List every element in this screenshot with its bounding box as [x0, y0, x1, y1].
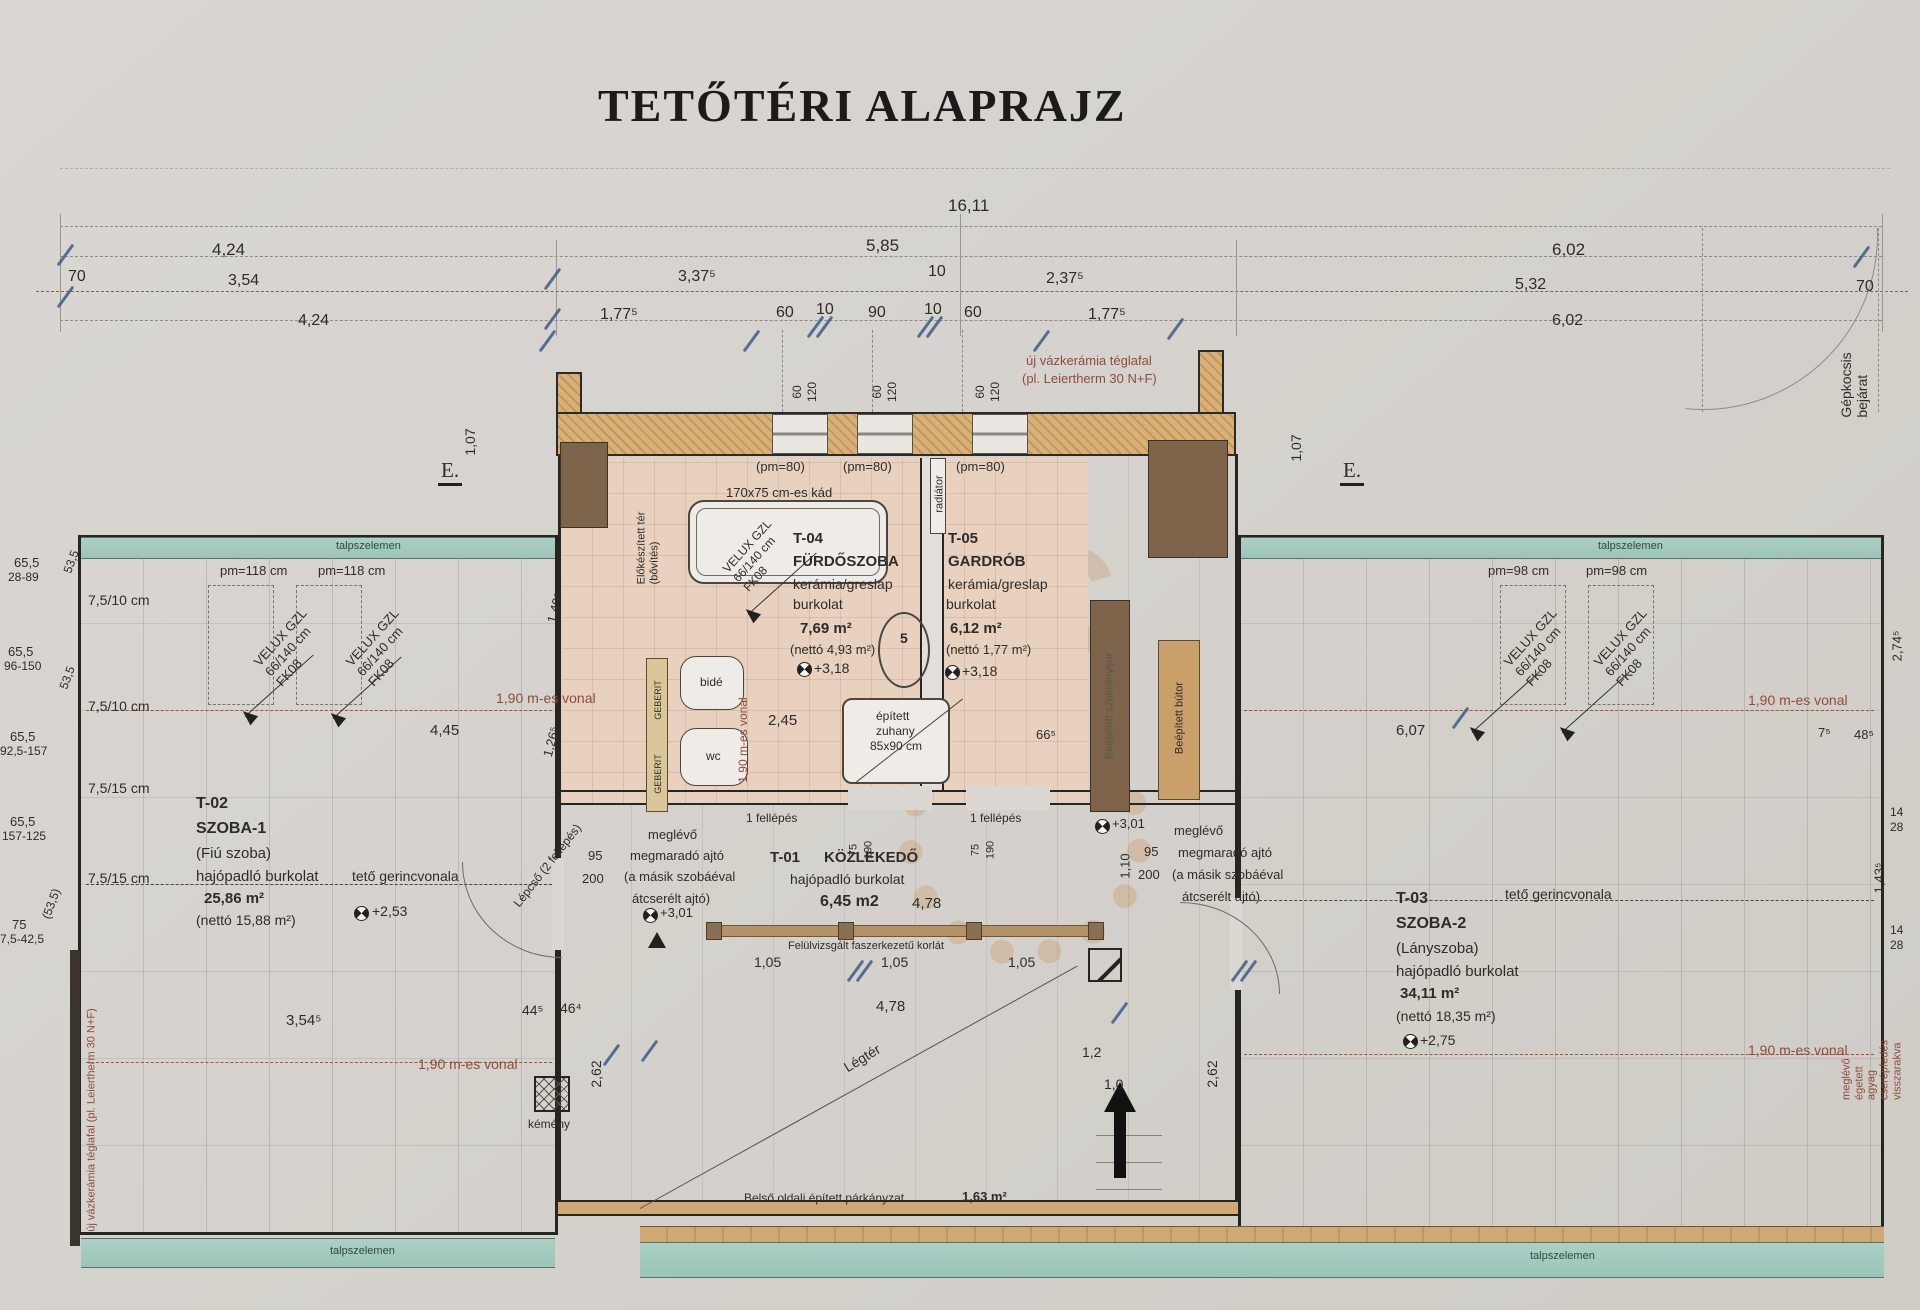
pen-mark — [743, 330, 761, 353]
corridor-label: 1,05 — [881, 954, 908, 970]
left_column-label: 53,5 — [58, 665, 79, 692]
dims_top-label: 5,85 — [866, 236, 899, 256]
left_column-label: 7,5-42,5 — [0, 933, 44, 947]
dims_top-label: 60 — [776, 304, 794, 322]
bathroom-label: burkolat — [793, 596, 843, 612]
dim-line — [60, 168, 1890, 169]
bathroom-label: wc — [706, 750, 721, 764]
bathroom-label: GEBERIT — [653, 680, 663, 720]
wall-plate-band — [1241, 537, 1881, 559]
wall-plate-band — [640, 1242, 1884, 1278]
railing — [712, 925, 1096, 937]
red_notes-label: meglévő égetett agyag cserépfedés vissza… — [1840, 1040, 1903, 1100]
corridor-label: 1,05 — [1008, 954, 1035, 970]
gardrob-label: 66⁵ — [1036, 728, 1056, 743]
window-opening — [772, 414, 828, 454]
wall-plate-label: talpszelemen — [1598, 540, 1663, 553]
bathroom-label: bidé — [700, 676, 723, 690]
railing-post — [706, 922, 722, 940]
wall-plate-band — [81, 537, 555, 559]
section-mark-right: E. — [1340, 458, 1364, 486]
corridor-label: 1,05 — [754, 954, 781, 970]
bathroom-label: kerámia/greslap — [793, 576, 893, 592]
room-id-t01: T-01 — [770, 849, 800, 866]
builtin-furniture-label: Beépített bútor — [1174, 682, 1187, 754]
top_wall-label: 120 — [806, 382, 820, 402]
top_wall-label: (pm=80) — [756, 460, 805, 475]
room-id-t05: T-05 — [948, 530, 978, 547]
left_room-label: (Fiú szoba) — [196, 845, 271, 862]
room-name-t03: SZOBA-2 — [1396, 915, 1466, 933]
right_room-label: pm=98 cm — [1488, 564, 1549, 579]
corridor-label: 2,62 — [1204, 1060, 1220, 1087]
right_edge-label: 1,43⁵ — [1873, 863, 1888, 894]
room-name-t04: FÜRDŐSZOBA — [793, 553, 899, 570]
right_room-label: +2,75 — [1420, 1032, 1455, 1048]
note-new-brick-wall: új vázkerámia téglafal — [1026, 354, 1152, 369]
wall-stub — [1198, 350, 1224, 414]
right_edge-label: 28 — [1890, 821, 1903, 835]
garage-door-line — [1878, 228, 1879, 412]
dim-line — [60, 226, 1882, 227]
pen-mark — [1167, 318, 1185, 341]
dim-tick — [60, 214, 61, 332]
corridor-label: +3,01 — [660, 906, 693, 921]
right_room-label: 34,11 m² — [1400, 985, 1459, 1002]
corridor-label: 190 — [985, 841, 998, 859]
dim-overall: 16,11 — [948, 196, 989, 216]
dims_top-label: 6,02 — [1552, 240, 1585, 260]
corridor-label: hajópadló burkolat — [790, 871, 904, 887]
corridor-label: 2,62 — [588, 1060, 604, 1087]
masonry-block — [560, 442, 608, 528]
corridor-label: megmaradó ajtó — [630, 849, 724, 864]
corridor-label: 1 fellépés — [970, 812, 1021, 826]
corridor-label: 1,63 m² — [962, 1190, 1007, 1205]
top_wall-label: 120 — [886, 382, 900, 402]
dims_top-label: 1,77⁵ — [600, 306, 638, 324]
gardrob-label: +3,18 — [962, 663, 997, 679]
left_column-label: 7,5/10 cm — [88, 698, 149, 714]
pen-mark — [544, 308, 562, 331]
right_room-label: hajópadló burkolat — [1396, 963, 1519, 980]
page-title: TETŐTÉRI ALAPRAJZ — [598, 79, 1238, 132]
dims_top-label: 5,32 — [1515, 276, 1546, 294]
red_notes-label: 1,90 m-es vonal — [418, 1056, 518, 1072]
chimney-label: kémény — [528, 1118, 570, 1132]
wall-stub — [556, 372, 582, 414]
bathroom-label: 85x90 cm — [870, 740, 922, 754]
dims_top-label: 90 — [868, 304, 886, 322]
pen-mark — [539, 330, 557, 353]
wall-plate-label: talpszelemen — [1530, 1250, 1595, 1263]
height-line-190 — [1244, 710, 1874, 711]
dims_top-label: 1,77⁵ — [1088, 306, 1126, 324]
left_room-label: pm=118 cm — [318, 564, 385, 579]
corridor-label: meglévő — [648, 828, 697, 843]
left_room-label: (nettó 15,88 m²) — [196, 912, 296, 928]
room-name-t02: SZOBA-1 — [196, 820, 266, 838]
corridor-label: Belső oldali épített párkányzat — [744, 1192, 904, 1206]
dim-line — [60, 256, 1882, 257]
red_notes-label: 1,90 m-es vonal — [1748, 1042, 1848, 1058]
red_notes-label: 1,90 m-es vonal — [1748, 692, 1848, 708]
dims_top-label: 2,37⁵ — [1046, 270, 1084, 288]
corridor-label: 1,2 — [1082, 1044, 1101, 1060]
wall-plate-label: talpszelemen — [336, 540, 401, 553]
wall-plate-band-tan — [640, 1226, 1884, 1243]
gardrob-label: kerámia/greslap — [948, 576, 1048, 592]
pen-mark — [1033, 330, 1051, 353]
pen-mark — [544, 268, 562, 291]
room-name-t01: KÖZLEKEDŐ — [824, 849, 918, 866]
right_edge-label: 28 — [1890, 939, 1903, 953]
left_column-label: 7,5/15 cm — [88, 780, 149, 796]
dim-tick — [1236, 240, 1237, 336]
step-arrow — [648, 932, 666, 948]
garage-entry-label: Gépkocsis bejárat — [1838, 352, 1870, 417]
corridor-label: 6,45 m2 — [820, 893, 879, 911]
left_column-label: 28-89 — [8, 571, 39, 585]
gardrob-label: burkolat — [946, 596, 996, 612]
left_room-label: 46⁴ — [560, 1000, 582, 1016]
dims_top-label: 4,24 — [298, 312, 329, 330]
right_edge-label: 14 — [1890, 924, 1903, 938]
dim-line — [36, 291, 1908, 292]
left_room-label: 3,54⁵ — [286, 1012, 321, 1029]
dims_top-label: 4,24 — [212, 240, 245, 260]
corridor-label: meglévő — [1174, 824, 1223, 839]
bathroom-label: +3,18 — [814, 660, 849, 676]
room-name-t05: GARDRÓB — [948, 553, 1026, 570]
floorplan-sheet: TETŐTÉRI ALAPRAJZ OC — [0, 0, 1920, 1310]
left_column-label: 65,5 — [10, 815, 35, 830]
corridor-label: átcserélt ajtó) — [1182, 890, 1260, 905]
top_wall-label: 60 — [871, 385, 885, 398]
red_notes-label: (pl. Leiertherm 30 N+F) — [1022, 372, 1157, 387]
dim-tick — [1882, 214, 1883, 332]
post-square — [1088, 948, 1122, 982]
top_wall-label: 60 — [791, 385, 805, 398]
red_notes-label: 1,90 m-es vonal — [496, 690, 596, 706]
bathroom-label: (nettó 4,93 m²) — [790, 643, 875, 658]
top_wall-label: 60 — [974, 385, 988, 398]
room-id-t03: T-03 — [1396, 890, 1428, 908]
left_room-label: pm=118 cm — [220, 564, 287, 579]
left_column-label: (53,5) — [40, 887, 64, 921]
bathroom-label: GEBERIT — [653, 754, 663, 794]
left_column-label: 75 — [12, 918, 26, 933]
ridge-line — [86, 884, 552, 885]
height-line-190 — [86, 710, 552, 711]
window-opening — [972, 414, 1028, 454]
left_room-label: tető gerincvonala — [352, 868, 459, 884]
gardrob-label: 6,12 m² — [950, 620, 1002, 637]
window-opening — [857, 414, 913, 454]
corridor-label: 95 — [588, 849, 602, 864]
corridor-label: (a másik szobáéval — [624, 870, 735, 885]
left_room-label: +2,53 — [372, 903, 407, 919]
corridor-label: 1,10 — [1119, 853, 1134, 878]
bathroom-label: zuhany — [876, 725, 915, 739]
top_wall-label: 1,07 — [462, 428, 478, 455]
right_edge-label: 14 — [1890, 806, 1903, 820]
wall-plate-band — [81, 1238, 555, 1268]
top_wall-label: 1,07 — [1288, 434, 1304, 461]
corridor-label: 1 fellépés — [746, 812, 797, 826]
wall-plate-label: talpszelemen — [330, 1245, 395, 1258]
right_room-label: pm=98 cm — [1586, 564, 1647, 579]
section-mark-left: E. — [438, 458, 462, 486]
top_wall-label: (pm=80) — [843, 460, 892, 475]
corridor-label: 95 — [1144, 845, 1158, 860]
railing-post — [1088, 922, 1104, 940]
masonry-block — [1148, 440, 1228, 558]
left_room-label: 25,86 m² — [204, 890, 264, 907]
right_room-label: 6,07 — [1396, 722, 1425, 739]
right_room-label: (nettó 18,35 m²) — [1396, 1008, 1496, 1024]
corridor-label: (a másik szobáéval — [1172, 868, 1283, 883]
corridor-label: +3,01 — [1112, 817, 1145, 832]
left_column-label: 7,5/10 cm — [88, 592, 149, 608]
railing-post — [838, 922, 854, 940]
door-opening-gardrob — [966, 786, 1050, 810]
dim-tick — [556, 240, 557, 336]
red_notes-label: 1,90 m-es vonal — [737, 697, 751, 782]
railing-post — [966, 922, 982, 940]
corridor-label: 200 — [1138, 868, 1160, 883]
corridor-label: megmaradó ajtó — [1178, 846, 1272, 861]
top_wall-label: 120 — [989, 382, 1003, 402]
left_column-label: 65,5 — [14, 556, 39, 571]
dims_top-label: 70 — [1856, 278, 1874, 296]
railing-note: Felülvizsgált faszerkezetű korlát — [788, 940, 944, 953]
dims_top-label: 3,54 — [228, 272, 259, 290]
corridor-label: 4,78 — [876, 998, 905, 1015]
left_room-label: 44⁵ — [522, 1002, 543, 1018]
top_wall-label: (pm=80) — [956, 460, 1005, 475]
left_column-label: 157-125 — [2, 830, 46, 844]
left_column-label: 65,5 — [10, 730, 35, 745]
bathroom-label: 2,45 — [768, 712, 797, 729]
bathroom-label: 5 — [900, 630, 908, 646]
door-opening-bath — [848, 786, 932, 810]
builtin-wardrobe-label: Beépített szekrénysor — [1104, 653, 1117, 759]
left_column-label: 7,5/15 cm — [88, 870, 149, 886]
left_column-label: 92,5-157 — [0, 745, 47, 759]
bathroom-label: Előkészített tér (bővítés) — [635, 512, 660, 585]
right_room-label: 48⁵ — [1854, 728, 1874, 743]
bathroom-label: épített — [876, 710, 909, 724]
projection-line — [872, 330, 873, 412]
dims_top-label: 70 — [68, 268, 86, 286]
bathtub-label: 170x75 cm-es kád — [726, 486, 832, 501]
left_room-label: 4,45 — [430, 722, 459, 739]
bathroom-label: 7,69 m² — [800, 620, 852, 637]
right_room-label: 7⁵ — [1818, 726, 1831, 741]
projection-line — [962, 330, 963, 412]
red_notes-label: új vázkerámia téglafal (pl. Leiertherm 3… — [86, 1008, 99, 1231]
right_room-label: tető gerincvonala — [1505, 886, 1612, 902]
left_room-label: hajópadló burkolat — [196, 868, 319, 885]
corridor-label: 4,78 — [912, 895, 941, 912]
chimney — [534, 1076, 570, 1112]
right_room-label: (Lányszoba) — [1396, 940, 1479, 957]
garage-door-swing-arc — [1528, 60, 1878, 410]
right_edge-label: 2,74⁵ — [1891, 631, 1906, 662]
dims_top-label: 3,37⁵ — [678, 268, 716, 286]
projection-line — [782, 330, 783, 412]
stair-count-ellipse — [878, 612, 930, 688]
left-outer-wall — [70, 950, 80, 1246]
stair-direction-arrow-shaft — [1114, 1110, 1126, 1178]
corridor-label: 200 — [582, 872, 604, 887]
room-id-t02: T-02 — [196, 795, 228, 813]
radiator-label: radiátor — [934, 475, 947, 512]
left_column-label: 65,5 — [8, 645, 33, 660]
dims_top-label: 10 — [928, 263, 946, 281]
corridor-label: 1,0 — [1104, 1076, 1123, 1092]
dims_top-label: 60 — [964, 304, 982, 322]
dims_top-label: 6,02 — [1552, 312, 1583, 330]
dim-tick — [960, 214, 961, 336]
corridor-label: 75 — [970, 844, 983, 856]
gardrob-label: (nettó 1,77 m²) — [946, 643, 1031, 658]
room-id-t04: T-04 — [793, 530, 823, 547]
left_column-label: 96-150 — [4, 660, 41, 674]
